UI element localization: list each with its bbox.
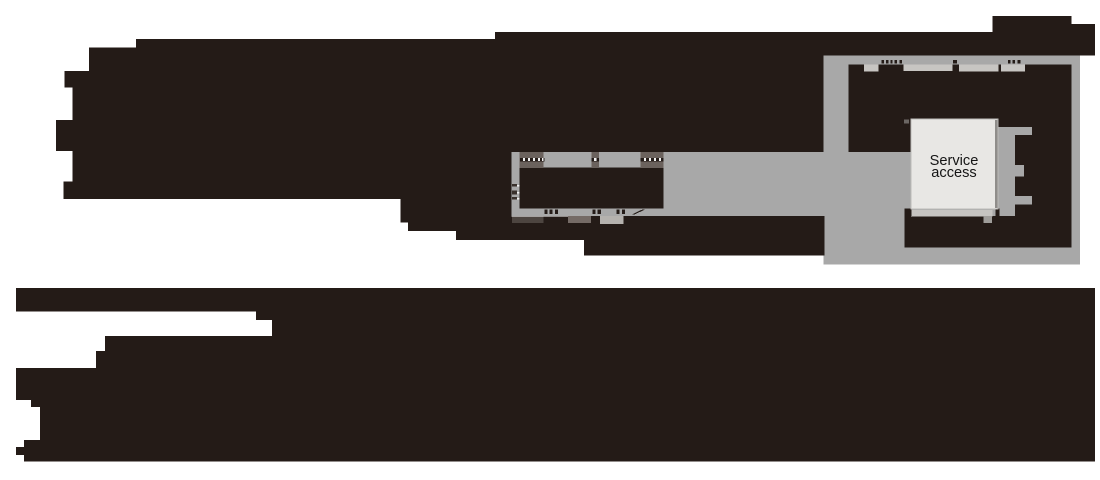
svg-text:access: access [931,165,976,181]
